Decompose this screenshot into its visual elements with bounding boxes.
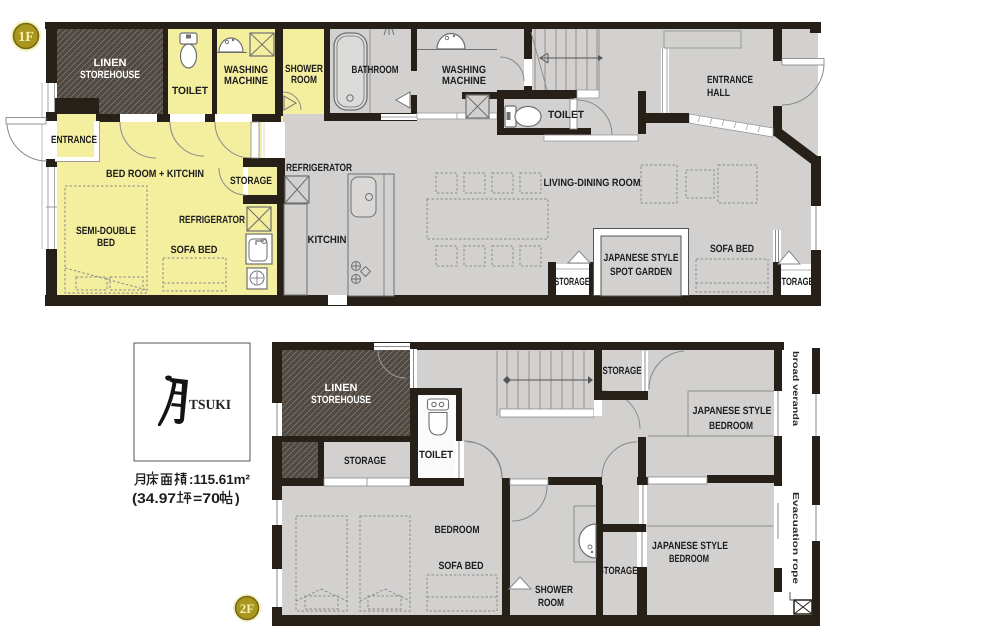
svg-text:SHOWER: SHOWER (535, 584, 573, 596)
svg-text:STORAGE: STORAGE (603, 365, 642, 377)
svg-text:STOREHOUSE: STOREHOUSE (311, 394, 371, 406)
svg-text:LINEN: LINEN (94, 57, 127, 69)
svg-text:SPOT GARDEN: SPOT GARDEN (610, 266, 672, 278)
svg-text:SOFA BED: SOFA BED (710, 243, 754, 255)
svg-text:LINEN: LINEN (325, 382, 358, 394)
svg-text:BED: BED (97, 237, 115, 249)
svg-text:SEMI-DOUBLE: SEMI-DOUBLE (76, 225, 136, 237)
svg-text:REFRIGERATOR: REFRIGERATOR (286, 162, 352, 174)
svg-text:JAPANESE STYLE: JAPANESE STYLE (693, 405, 772, 417)
svg-text:): ) (235, 490, 240, 506)
svg-text:ROOM: ROOM (538, 597, 564, 609)
svg-text:STORAGE: STORAGE (599, 565, 638, 577)
svg-text:BED ROOM + KITCHIN: BED ROOM + KITCHIN (106, 168, 204, 180)
svg-text:REFRIGERATOR: REFRIGERATOR (179, 214, 245, 226)
svg-text:ENTRANCE: ENTRANCE (51, 134, 97, 146)
svg-text:MACHINE: MACHINE (442, 75, 486, 87)
svg-text:SOFA BED: SOFA BED (171, 244, 218, 256)
svg-text:BEDROOM: BEDROOM (669, 553, 709, 565)
svg-text:BATHROOM: BATHROOM (352, 64, 399, 76)
svg-text:JAPANESE STYLE: JAPANESE STYLE (652, 540, 728, 552)
svg-text:=70: =70 (193, 490, 220, 506)
svg-text:2F: 2F (240, 601, 255, 616)
svg-text:HALL: HALL (707, 87, 730, 99)
svg-text:STORAGE: STORAGE (777, 276, 814, 288)
svg-text:TOILET: TOILET (172, 85, 209, 97)
svg-text:MACHINE: MACHINE (224, 75, 268, 87)
svg-text:JAPANESE STYLE: JAPANESE STYLE (604, 252, 679, 264)
svg-text:STORAGE: STORAGE (555, 276, 590, 288)
svg-text:BEDROOM: BEDROOM (709, 420, 753, 432)
svg-text:1F: 1F (18, 30, 34, 45)
svg-text:STORAGE: STORAGE (230, 175, 272, 187)
svg-text:KITCHIN: KITCHIN (308, 234, 347, 246)
svg-text:TOILET: TOILET (548, 109, 585, 121)
svg-text:broad veranda: broad veranda (791, 351, 801, 426)
svg-text::115.61m²: :115.61m² (189, 472, 250, 487)
svg-text:TSUKI: TSUKI (189, 398, 231, 413)
svg-text:STOREHOUSE: STOREHOUSE (80, 69, 140, 81)
svg-text:ROOM: ROOM (291, 74, 317, 86)
svg-text:TOILET: TOILET (419, 449, 454, 461)
svg-text:Evacuation rope: Evacuation rope (791, 492, 801, 584)
svg-text:ENTRANCE: ENTRANCE (707, 74, 753, 86)
svg-text:STORAGE: STORAGE (344, 455, 386, 467)
svg-text:(34.97: (34.97 (132, 490, 176, 506)
svg-text:BEDROOM: BEDROOM (435, 524, 480, 536)
svg-text:LIVING-DINING ROOM: LIVING-DINING ROOM (544, 177, 641, 189)
svg-text:SOFA BED: SOFA BED (439, 560, 484, 572)
